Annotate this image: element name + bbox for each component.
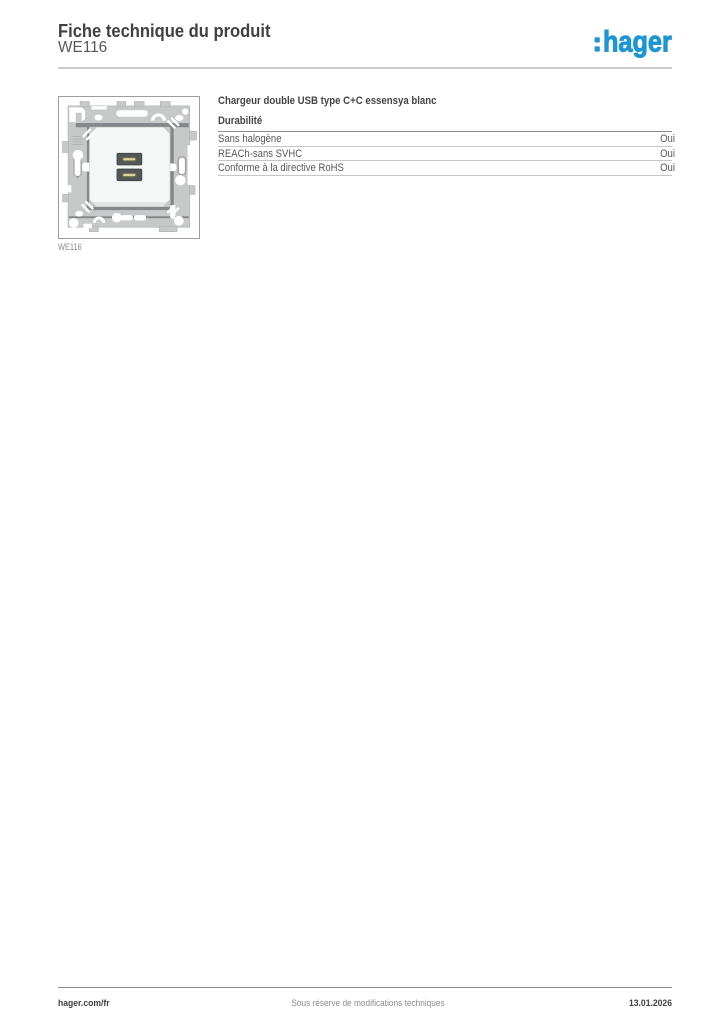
- svg-text:hager: hager: [603, 24, 672, 58]
